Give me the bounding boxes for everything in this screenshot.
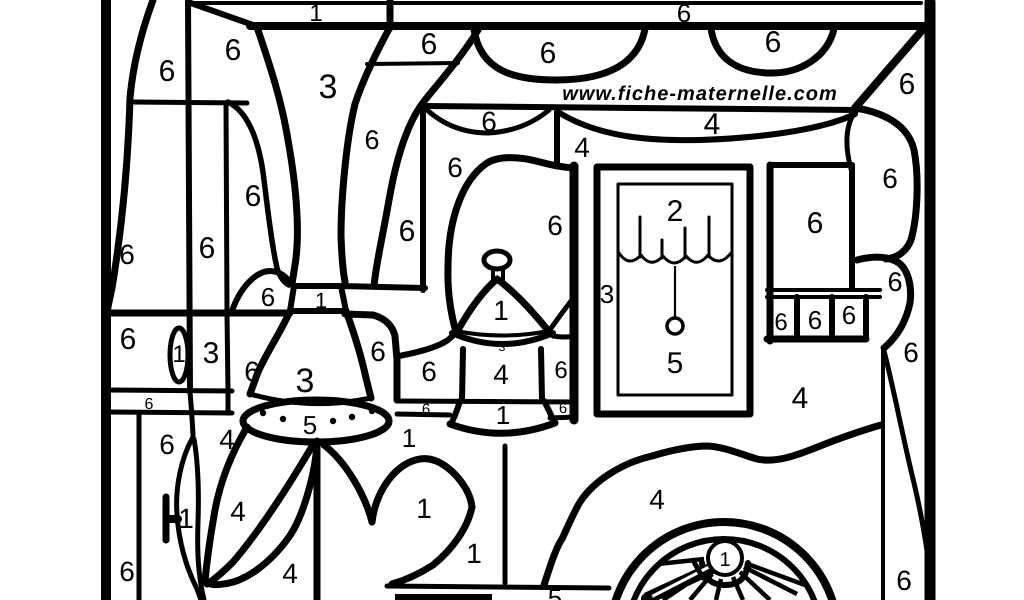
svg-text:6: 6 (119, 556, 135, 587)
svg-text:6: 6 (899, 68, 916, 101)
svg-text:5: 5 (667, 347, 684, 380)
svg-text:6: 6 (765, 26, 782, 59)
svg-text:6: 6 (364, 125, 379, 155)
svg-text:1: 1 (466, 538, 482, 569)
svg-text:4: 4 (704, 108, 721, 141)
svg-text:6: 6 (245, 180, 262, 213)
svg-text:1: 1 (178, 503, 194, 534)
svg-text:2: 2 (667, 195, 684, 228)
svg-text:3: 3 (296, 362, 315, 400)
svg-text:6: 6 (540, 37, 557, 70)
svg-text:6: 6 (120, 323, 137, 356)
svg-text:6: 6 (225, 34, 242, 67)
svg-text:6: 6 (119, 239, 135, 270)
svg-text:6: 6 (559, 400, 567, 417)
svg-text:6: 6 (422, 401, 430, 418)
svg-text:1: 1 (309, 0, 322, 27)
svg-text:1: 1 (172, 341, 185, 368)
svg-text:4: 4 (574, 132, 590, 163)
svg-text:6: 6 (159, 429, 175, 460)
svg-text:6: 6 (774, 309, 787, 336)
svg-text:1: 1 (493, 295, 509, 326)
svg-text:3: 3 (203, 337, 220, 370)
svg-text:6: 6 (547, 210, 563, 241)
svg-text:6: 6 (882, 163, 898, 194)
svg-text:3: 3 (499, 340, 506, 354)
svg-text:1: 1 (719, 549, 730, 571)
svg-text:6: 6 (481, 106, 497, 137)
svg-text:6: 6 (370, 336, 386, 367)
svg-text:1: 1 (315, 288, 327, 313)
svg-text:6: 6 (399, 215, 416, 248)
svg-text:6: 6 (447, 152, 463, 183)
svg-text:1: 1 (402, 423, 416, 453)
svg-text:6: 6 (244, 356, 260, 387)
svg-text:6: 6 (145, 396, 154, 413)
svg-text:4: 4 (649, 484, 665, 515)
svg-text:6: 6 (421, 28, 438, 61)
svg-text:4: 4 (493, 359, 509, 390)
svg-text:6: 6 (159, 55, 176, 88)
svg-text:1: 1 (496, 400, 510, 430)
svg-text:4: 4 (219, 424, 235, 455)
svg-text:6: 6 (677, 0, 691, 28)
svg-text:4: 4 (282, 558, 298, 589)
svg-text:4: 4 (792, 382, 809, 415)
svg-text:6: 6 (896, 565, 912, 596)
svg-text:6: 6 (903, 337, 919, 368)
svg-text:6: 6 (554, 357, 567, 384)
svg-text:3: 3 (600, 279, 614, 309)
svg-text:6: 6 (807, 207, 824, 240)
svg-text:5: 5 (548, 583, 562, 600)
svg-text:www.fiche-maternelle.com: www.fiche-maternelle.com (562, 83, 838, 105)
svg-text:3: 3 (319, 68, 338, 106)
svg-text:6: 6 (421, 356, 437, 387)
svg-text:6: 6 (842, 300, 856, 330)
svg-text:6: 6 (199, 232, 216, 265)
svg-text:5: 5 (303, 410, 317, 440)
svg-text:6: 6 (261, 282, 275, 312)
svg-text:4: 4 (230, 496, 246, 527)
svg-text:6: 6 (887, 267, 902, 297)
svg-text:6: 6 (808, 305, 822, 335)
svg-text:1: 1 (416, 493, 432, 524)
